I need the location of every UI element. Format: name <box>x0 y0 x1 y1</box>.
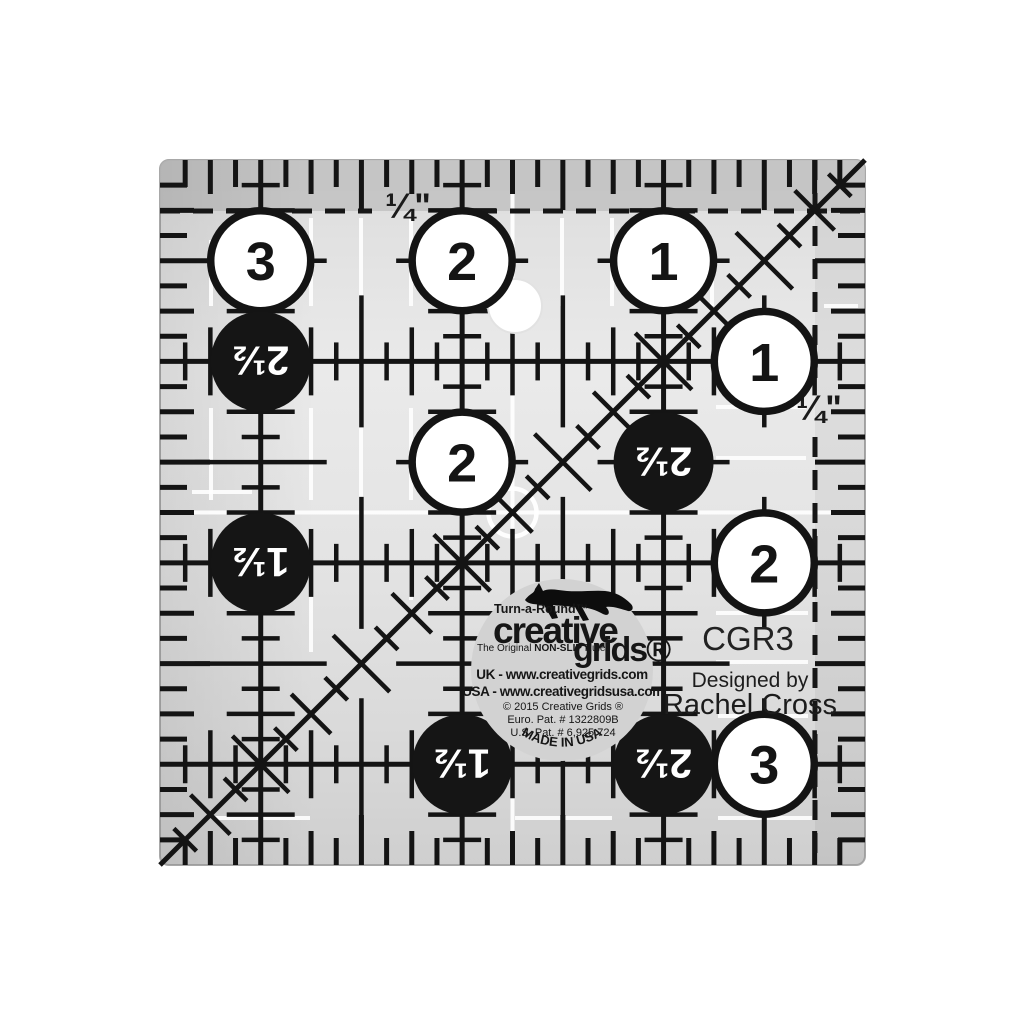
logo-uk-url: UK - www.creativegrids.com <box>476 667 648 682</box>
measure-number-inverted: 2½ <box>635 741 692 787</box>
ruler-photo: ¼" ¼" 32112232½2½1½1½2½ Turn-a-Round™ cr… <box>0 0 1024 1024</box>
measure-number-inverted: 2½ <box>635 438 692 484</box>
product-photo: ¼" ¼" 32112232½2½1½1½2½ Turn-a-Round™ cr… <box>0 0 1024 1024</box>
designer-name: Rachel Cross <box>663 689 837 721</box>
measure-number: 3 <box>246 232 276 292</box>
quarter-inch-label-top: ¼" <box>385 187 431 226</box>
measure-number-inverted: 2½ <box>232 338 289 384</box>
logo-tagline: The Original NON-SLIP Ruler <box>477 643 609 654</box>
measure-number: 2 <box>749 534 779 594</box>
measure-number: 1 <box>649 232 679 292</box>
logo-euro-patent: Euro. Pat. # 1322809B <box>507 714 618 726</box>
measure-number: 3 <box>749 736 779 796</box>
measure-number-inverted: 1½ <box>434 741 491 787</box>
measure-number-inverted: 1½ <box>232 539 289 585</box>
measure-number: 2 <box>447 232 477 292</box>
logo-copyright: © 2015 Creative Grids ® <box>503 701 623 713</box>
logo-usa-url: USA - www.creativegridsusa.com <box>462 684 664 699</box>
measure-number: 2 <box>447 434 477 494</box>
measure-number: 1 <box>749 333 779 393</box>
model-number: CGR3 <box>702 620 794 657</box>
